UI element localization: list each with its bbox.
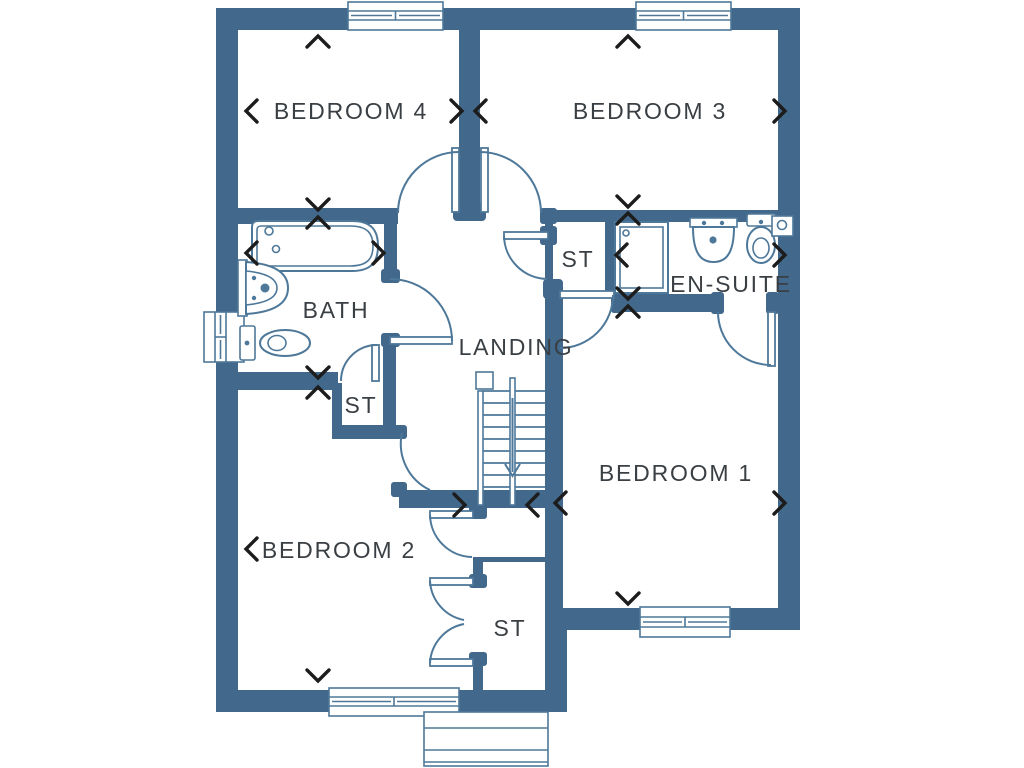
wall-bath-right-upper xyxy=(384,208,397,276)
label-bedroom2: BEDROOM 2 xyxy=(262,537,416,563)
door-understairs-cupboard xyxy=(430,511,473,557)
dim-left-icon xyxy=(246,538,257,560)
label-bedroom3: BEDROOM 3 xyxy=(573,98,727,124)
dim-down-icon xyxy=(617,196,639,207)
dim-down-icon xyxy=(307,670,329,681)
stairs xyxy=(476,372,545,505)
window-bath xyxy=(204,312,244,362)
label-landing: LANDING xyxy=(459,334,574,360)
label-bedroom4: BEDROOM 4 xyxy=(274,98,428,124)
stairs-down-arrow-icon xyxy=(505,398,520,476)
wall-exterior-right xyxy=(778,8,800,630)
ensuite-vent-icon xyxy=(772,216,793,236)
bathtub-icon xyxy=(252,221,378,271)
door-bedroom4 xyxy=(398,148,459,213)
dim-up-icon xyxy=(307,36,329,47)
door-st-hall-double xyxy=(430,578,473,666)
door-ensuite xyxy=(718,312,775,366)
label-bedroom1: BEDROOM 1 xyxy=(599,460,753,486)
ensuite-basin-icon xyxy=(690,218,737,262)
window-bedroom4 xyxy=(348,2,443,30)
wall-st-ensuite-divider xyxy=(605,222,614,294)
dim-up-icon xyxy=(617,36,639,47)
window-bedroom3 xyxy=(636,2,731,30)
door-bedroom2 xyxy=(401,433,430,490)
door-bedroom3 xyxy=(480,148,541,213)
door-st-bath xyxy=(341,345,379,381)
stairs-newel-post xyxy=(476,372,493,389)
hinge-st-landing-top xyxy=(540,208,557,224)
stairs-left-rail xyxy=(478,391,483,505)
label-st-hall: ST xyxy=(494,615,527,641)
door-st-landing xyxy=(504,232,548,279)
hinge-bath-top xyxy=(381,269,400,283)
label-st-landing: ST xyxy=(562,246,595,272)
wall-cupboard-divider xyxy=(473,557,545,562)
label-ensuite: EN-SUITE xyxy=(670,271,792,297)
porch-canopy xyxy=(424,712,548,766)
floor-plan-drawing: BEDROOM 4 BEDROOM 3 BATH ST LANDING ST E… xyxy=(0,0,1024,768)
label-st-bath: ST xyxy=(345,392,378,418)
wall-cupboard-col-3 xyxy=(473,663,483,690)
dim-down-icon xyxy=(617,593,639,604)
bath-toilet-icon xyxy=(240,326,310,360)
wall-bath-right-lower xyxy=(383,341,396,436)
label-bath: BATH xyxy=(303,297,370,323)
shower-icon xyxy=(615,222,668,293)
floor-plan: BEDROOM 4 BEDROOM 3 BATH ST LANDING ST E… xyxy=(0,0,1024,768)
hinge-bedroom2-door xyxy=(391,425,407,439)
dim-left-icon xyxy=(246,100,257,122)
window-bedroom1 xyxy=(640,607,730,637)
wall-bedroom3-bottom xyxy=(541,210,778,222)
wall-center-stub xyxy=(459,30,480,213)
